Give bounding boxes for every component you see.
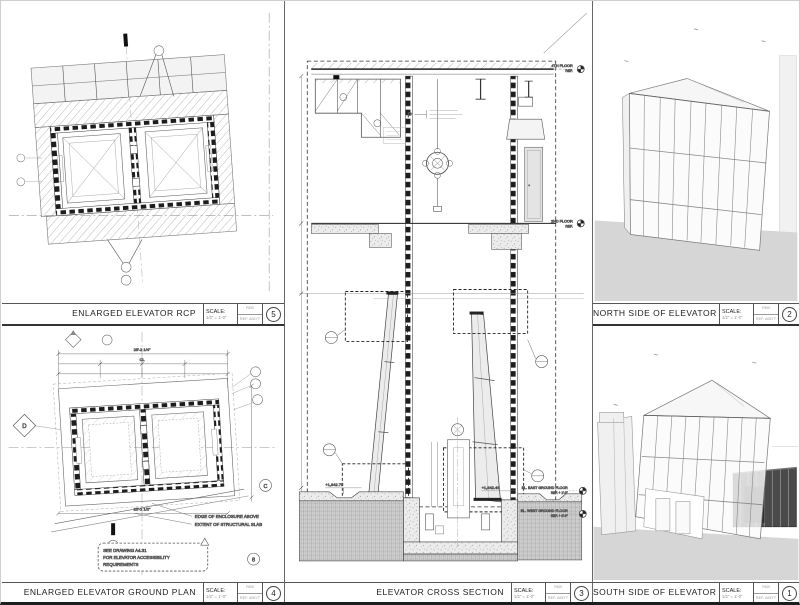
scale-value: 1/2" = 1'-0" xyxy=(206,315,235,320)
panel-enlarged-elevator-ground-plan: 25'-2 1/4" CL 25'-2 1/2" xyxy=(2,326,285,603)
level-ref: REF. xyxy=(565,69,572,73)
cloud-line-3: REQUIREMENTS xyxy=(103,562,138,567)
p-tag: P xyxy=(407,112,411,119)
drawing-title: ELEVATOR CROSS SECTION xyxy=(285,583,511,603)
detail-number: 3 xyxy=(574,586,589,601)
detail-number: 1 xyxy=(782,586,797,601)
dim-overall-top: 25'-2 1/4" xyxy=(134,347,151,352)
rev-top: RKB xyxy=(238,304,262,315)
level-4th-floor: 4TH FLOOR REF. xyxy=(551,64,584,73)
rcp-callout-bottom xyxy=(107,239,142,285)
cloud-note: SEE DRAWING A4.31 FOR ELEVATOR ACCESSIBI… xyxy=(98,538,209,571)
scale-cell: SCALE: 1/2" = 1'-0" xyxy=(203,304,237,324)
rev-top: RKB xyxy=(546,583,570,594)
drawing-title: ENLARGED ELEVATOR RCP xyxy=(2,304,203,324)
ground-plan-titlebar: ENLARGED ELEVATOR GROUND PLAN SCALE: 1/2… xyxy=(2,582,284,603)
second-floor-slab: 2ND FLOOR REF. xyxy=(311,219,584,249)
level-label: 2ND FLOOR xyxy=(551,219,573,223)
hoist-machine xyxy=(422,79,452,211)
panel-enlarged-elevator-rcp: ENLARGED ELEVATOR RCP SCALE: 1/2" = 1'-0… xyxy=(2,1,285,326)
shaft-wall-right xyxy=(511,76,518,542)
number-cell: 5 xyxy=(262,304,284,324)
cross-section-drawing: 4TH FLOOR REF. xyxy=(285,1,592,582)
rev-bottom: REF. ADD'T xyxy=(754,315,778,325)
level-label: EL. WEST GROUND FLOOR xyxy=(521,509,568,513)
south-view-drawing xyxy=(593,326,800,582)
rev-bottom: REF. ADD'T xyxy=(238,315,262,325)
north-view-titlebar: NORTH SIDE OF ELEVATOR SCALE: 1/2" = 1'-… xyxy=(593,303,800,324)
scale-value: 1/2" = 1'-0" xyxy=(722,594,751,599)
rev-cell: RKB REF. ADD'T xyxy=(237,583,262,603)
number-cell: 4 xyxy=(262,583,284,603)
drawing-title: NORTH SIDE OF ELEVATOR xyxy=(593,304,719,324)
level-label: EL. EAST GROUND FLOOR xyxy=(522,486,568,490)
rcp-plan xyxy=(29,27,240,288)
left-massing xyxy=(598,412,636,534)
vent xyxy=(519,97,533,106)
north-view-drawing xyxy=(593,1,800,303)
rev-cell: RKB REF. ADD'T xyxy=(545,583,570,603)
hood xyxy=(507,119,545,139)
rev-top: RKB xyxy=(238,583,262,594)
bubble-b: 8 xyxy=(252,558,255,564)
rev-cell: RKB REF. ADD'T xyxy=(753,304,778,324)
drawing-title: ENLARGED ELEVATOR GROUND PLAN xyxy=(2,583,203,603)
grid-diamond-label: D xyxy=(22,424,27,430)
scale-cell: SCALE: 1/2" = 1'-0" xyxy=(719,583,753,603)
detail-number: 5 xyxy=(266,307,281,322)
scale-cell: SCALE: 1/2" = 1'-0" xyxy=(719,304,753,324)
number-cell: 1 xyxy=(778,583,800,603)
glass-panel-left xyxy=(366,292,398,500)
number-cell: 2 xyxy=(778,304,800,324)
south-view-titlebar: SOUTH SIDE OF ELEVATOR SCALE: 1/2" = 1'-… xyxy=(593,582,800,603)
cloud-line-2: FOR ELEVATOR ACCESSIBILITY xyxy=(103,555,170,560)
rev-cell: RKB REF. ADD'T xyxy=(753,583,778,603)
glass-enclosure-north xyxy=(622,78,769,250)
level-ref: REF. xyxy=(565,224,572,228)
cloud-line-1: SEE DRAWING A4.31 xyxy=(103,548,147,553)
cross-section-titlebar: ELEVATOR CROSS SECTION SCALE: 1/2" = 1'-… xyxy=(285,582,592,603)
rev-top: RKB xyxy=(754,583,778,594)
rev-top: RKB xyxy=(754,304,778,315)
plan-notes: EDGE OF ENCLOSURE ABOVE EXTENT OF STRUCT… xyxy=(134,503,262,527)
steel-beams xyxy=(476,79,533,99)
rev-cell: RKB REF. ADD'T xyxy=(237,304,262,324)
number-cell: 3 xyxy=(570,583,592,603)
rcp-drawing xyxy=(2,1,284,303)
level-ref: REF. + 1'-0" xyxy=(551,491,568,495)
scale-value: 1/2" = 1'-0" xyxy=(514,594,543,599)
glass-panel-right xyxy=(470,312,502,502)
drawing-sheet: ENLARGED ELEVATOR RCP SCALE: 1/2" = 1'-0… xyxy=(0,0,800,605)
scale-value: 1/2" = 1'-0" xyxy=(722,315,751,320)
level-label: 4TH FLOOR xyxy=(551,64,573,68)
scale-value: 1/2" = 1'-0" xyxy=(206,594,235,599)
sky-marks xyxy=(624,29,765,62)
bubble-c: C xyxy=(264,484,268,490)
detail-number: 4 xyxy=(266,586,281,601)
roof-truss xyxy=(315,75,400,137)
rcp-titlebar: ENLARGED ELEVATOR RCP SCALE: 1/2" = 1'-0… xyxy=(2,303,284,324)
elevation-value: +1,842.75 xyxy=(325,482,344,487)
level-east-ground: EL. EAST GROUND FLOOR REF. + 1'-0" xyxy=(522,486,587,495)
panel-north-side: NORTH SIDE OF ELEVATOR SCALE: 1/2" = 1'-… xyxy=(593,1,800,326)
scale-cell: SCALE: 1/2" = 1'-0" xyxy=(203,583,237,603)
dim-cl: CL xyxy=(139,357,145,362)
scale-cell: SCALE: 1/2" = 1'-0" xyxy=(511,583,545,603)
rev-bottom: REF. ADD'T xyxy=(238,594,262,604)
panel-south-side: SOUTH SIDE OF ELEVATOR SCALE: 1/2" = 1'-… xyxy=(593,326,800,603)
level-ref: REF. + 0'-0" xyxy=(551,514,568,518)
note-extent-of-slab: EXTENT OF STRUCTURAL SLAB xyxy=(195,522,262,527)
detail-number: 2 xyxy=(782,307,797,322)
rev-bottom: REF. ADD'T xyxy=(754,594,778,604)
drawing-title: SOUTH SIDE OF ELEVATOR xyxy=(593,583,719,603)
ground-plan-drawing: 25'-2 1/4" CL 25'-2 1/2" xyxy=(2,326,284,582)
backdrop-wall xyxy=(779,56,796,245)
elevation-value: +1,842.46 xyxy=(482,485,501,490)
note-edge-of-enclosure: EDGE OF ENCLOSURE ABOVE xyxy=(195,514,259,519)
panel-elevator-cross-section: 4TH FLOOR REF. xyxy=(285,1,593,603)
rev-bottom: REF. ADD'T xyxy=(546,594,570,604)
